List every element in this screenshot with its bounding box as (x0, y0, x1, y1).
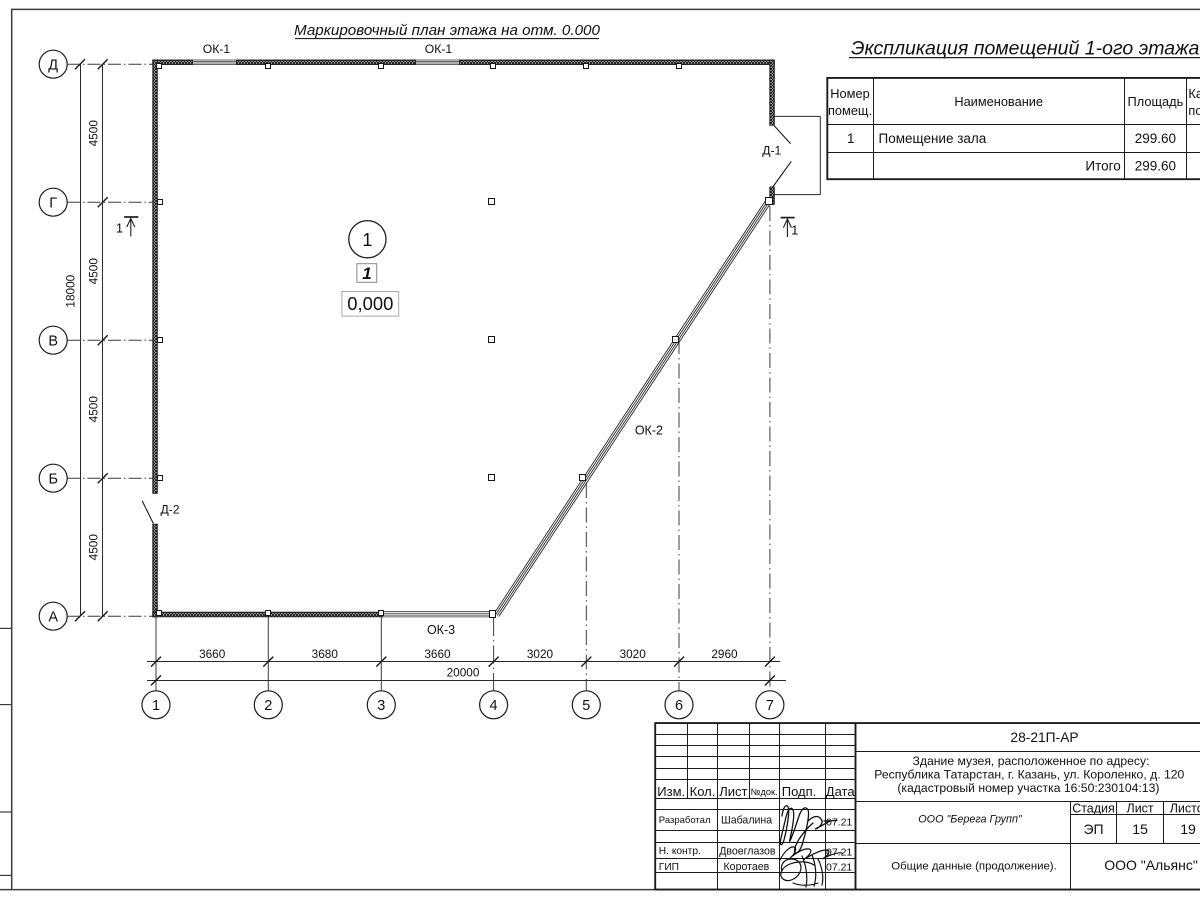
svg-text:2: 2 (264, 698, 272, 714)
svg-text:Категория: Категория (1188, 86, 1200, 101)
svg-text:ООО "Альянс": ООО "Альянс" (1104, 857, 1198, 873)
svg-text:3680: 3680 (312, 647, 339, 661)
svg-text:Дата: Дата (826, 784, 856, 799)
svg-text:3660: 3660 (199, 647, 226, 661)
svg-text:Кол.: Кол. (690, 784, 716, 799)
svg-text:ОК-1: ОК-1 (203, 42, 231, 56)
svg-text:3: 3 (377, 698, 385, 714)
svg-text:Экспликация помещений 1-ого эт: Экспликация помещений 1-ого этажа (851, 37, 1200, 59)
svg-text:Лист: Лист (1127, 802, 1154, 816)
svg-text:Изм.: Изм. (657, 784, 685, 799)
svg-text:28-21П-АР: 28-21П-АР (1010, 730, 1078, 745)
svg-text:Общие данные (продолжение).: Общие данные (продолжение). (891, 861, 1057, 873)
svg-text:Двоеглазов: Двоеглазов (719, 846, 776, 858)
svg-text:(кадастровый номер участка 16:: (кадастровый номер участка 16:50:230104:… (897, 781, 1159, 795)
svg-text:Номер: Номер (830, 86, 869, 101)
svg-text:Площадь: Площадь (1128, 94, 1184, 109)
svg-text:20000: 20000 (447, 665, 480, 679)
svg-text:Итого: Итого (1085, 158, 1120, 173)
svg-text:Листов: Листов (1170, 802, 1200, 816)
svg-text:Д-2: Д-2 (160, 502, 179, 516)
svg-text:4: 4 (490, 698, 498, 714)
svg-text:Д-1: Д-1 (762, 144, 781, 158)
svg-text:1: 1 (152, 698, 160, 714)
svg-text:Здание музея, расположенное по: Здание музея, расположенное по адресу: (913, 754, 1150, 768)
svg-text:1: 1 (362, 230, 372, 250)
svg-text:6: 6 (675, 698, 683, 714)
svg-text:Наименование: Наименование (954, 94, 1043, 109)
svg-text:2960: 2960 (711, 647, 738, 661)
svg-text:Стадия: Стадия (1072, 802, 1115, 816)
svg-text:7: 7 (766, 698, 774, 714)
svg-text:Н. контр.: Н. контр. (659, 846, 701, 857)
svg-text:Подп.: Подп. (782, 784, 817, 799)
svg-text:0,000: 0,000 (347, 293, 393, 314)
svg-text:4500: 4500 (87, 258, 101, 285)
svg-text:299.60: 299.60 (1135, 131, 1176, 146)
svg-text:1: 1 (847, 131, 855, 146)
svg-text:18000: 18000 (64, 274, 78, 307)
svg-text:1: 1 (116, 221, 123, 236)
svg-text:Маркировочный план этажа на от: Маркировочный план этажа на отм. 0.000 (294, 22, 600, 39)
svg-text:4500: 4500 (87, 534, 101, 561)
svg-text:Республика Татарстан, г. Казан: Республика Татарстан, г. Казань, ул. Кор… (874, 768, 1184, 782)
svg-text:Коротаев: Коротаев (724, 861, 770, 873)
svg-text:299.60: 299.60 (1135, 158, 1176, 173)
svg-text:ООО "Берега Групп": ООО "Берега Групп" (918, 814, 1023, 826)
svg-text:19: 19 (1180, 821, 1196, 837)
svg-text:1: 1 (791, 222, 798, 237)
svg-text:№док.: №док. (751, 787, 778, 797)
svg-text:ЭП: ЭП (1083, 821, 1103, 837)
svg-text:4500: 4500 (87, 120, 101, 147)
svg-text:1: 1 (362, 264, 371, 283)
svg-text:Б: Б (48, 471, 58, 487)
svg-text:помещения: помещения (1188, 103, 1200, 118)
svg-text:Помещение зала: Помещение зала (879, 131, 987, 146)
svg-text:Лист: Лист (719, 784, 747, 799)
svg-text:Д: Д (48, 57, 58, 73)
svg-text:Шабалина: Шабалина (721, 814, 772, 826)
svg-text:4500: 4500 (87, 396, 101, 423)
svg-text:Г: Г (49, 195, 57, 211)
svg-text:В: В (48, 333, 58, 349)
svg-text:Разработал: Разработал (659, 815, 711, 826)
svg-text:5: 5 (582, 698, 590, 714)
svg-text:07.21: 07.21 (826, 861, 852, 873)
svg-text:ОК-1: ОК-1 (425, 42, 453, 56)
svg-text:3020: 3020 (620, 647, 647, 661)
svg-text:3660: 3660 (424, 647, 451, 661)
svg-text:ГИП: ГИП (659, 862, 679, 873)
svg-text:ОК-2: ОК-2 (635, 423, 663, 437)
svg-text:3020: 3020 (527, 647, 554, 661)
svg-text:15: 15 (1132, 821, 1148, 837)
svg-text:помещ.: помещ. (828, 103, 872, 118)
svg-text:07.21: 07.21 (826, 817, 852, 829)
svg-text:А: А (48, 609, 58, 625)
svg-text:ОК-3: ОК-3 (427, 623, 455, 637)
